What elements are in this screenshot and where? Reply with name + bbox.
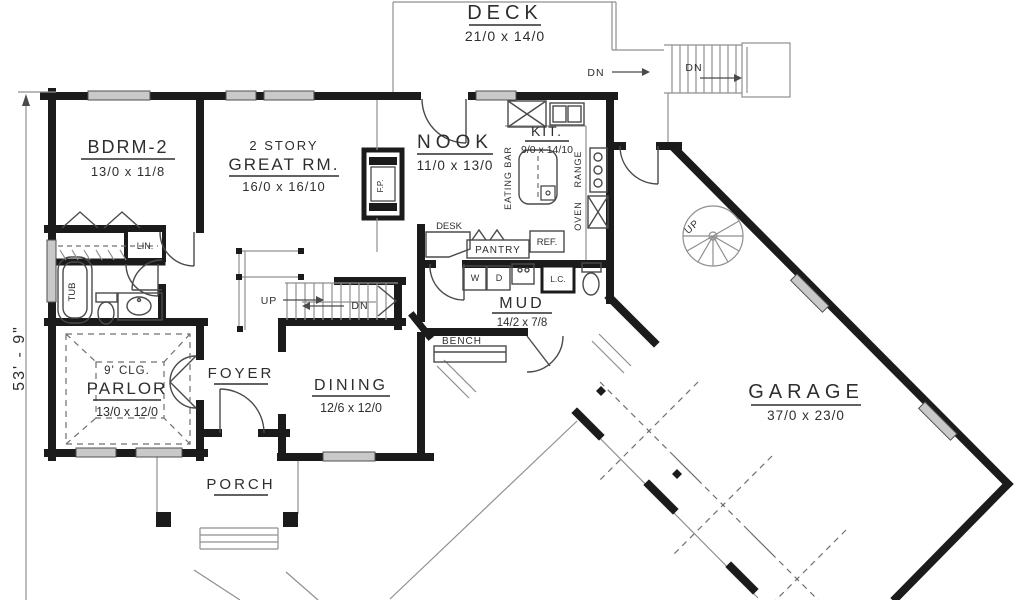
nook-name: NOOK [417, 132, 493, 153]
ref-label: REF. [537, 237, 558, 248]
room-label-dining: DINING 12/6 x 12/0 [312, 377, 390, 415]
floor-plan-drawing: DECK 21/0 x 14/0 BDRM-2 13/0 x 11/8 2 ST… [0, 0, 1024, 600]
garage-walls [577, 150, 1008, 598]
room-label-deck: DECK 21/0 x 14/0 [465, 2, 545, 44]
garage-post-marker [672, 469, 682, 479]
foyer-name: FOYER [208, 365, 275, 382]
driveway-walk-lines [194, 334, 758, 600]
great-rm-prefix: 2 STORY [249, 138, 318, 153]
oven-label: OVEN [573, 201, 583, 231]
room-label-kitchen: KIT. 9/0 x 14/10 [521, 123, 573, 156]
deck-name: DECK [467, 2, 543, 24]
mud-dim: 14/2 x 7/8 [497, 317, 548, 329]
parlor-dim: 13/0 x 12/0 [96, 405, 158, 419]
desk-label: DESK [436, 221, 463, 232]
parlor-name: PARLOR [87, 379, 168, 398]
oven-cabinet [588, 196, 608, 228]
garage-post-marker [596, 386, 606, 396]
room-label-porch: PORCH [206, 476, 275, 495]
linen-door-arc [126, 264, 158, 296]
stairs-dn-label: DN [351, 300, 368, 312]
spiral-up-label: UP [683, 218, 702, 237]
tub-label: TUB [67, 283, 78, 302]
room-label-mud: MUD 14/2 x 7/8 [492, 295, 552, 329]
porch-name: PORCH [206, 476, 275, 493]
kitchen-island [519, 150, 557, 204]
mud-name: MUD [499, 295, 544, 312]
garage-dim: 37/0 x 23/0 [767, 408, 845, 423]
stairs-up-label: UP [261, 295, 278, 307]
nook-dim: 11/0 x 13/0 [417, 158, 494, 173]
kitchen-dim: 9/0 x 14/10 [521, 144, 573, 156]
great-rm-dim: 16/0 x 16/10 [242, 179, 326, 194]
side-dimension-label: 53' - 9" [11, 325, 28, 391]
parlor-double-door-arcs [170, 356, 196, 408]
porch-column [156, 512, 171, 527]
washer-label: W [471, 273, 480, 283]
dining-name: DINING [314, 377, 388, 394]
room-label-great-rm: 2 STORY GREAT RM. 16/0 x 16/10 [229, 138, 340, 194]
pantry-label: PANTRY [475, 245, 521, 256]
deck-walkway [612, 45, 742, 144]
desk-counter [426, 232, 470, 257]
room-label-foyer: FOYER [208, 365, 275, 384]
deck-dn-label: DN [587, 67, 604, 79]
range-burners [590, 148, 607, 192]
dining-dim: 12/6 x 12/0 [320, 401, 382, 415]
deck-dim: 21/0 x 14/0 [465, 28, 545, 44]
bdrm2-dim: 13/0 x 11/8 [91, 164, 165, 179]
breezeway-door-arc [620, 146, 658, 184]
fp-label: F.P. [376, 180, 385, 193]
lc-label: L.C. [550, 274, 566, 284]
bench-label: BENCH [442, 336, 482, 347]
room-label-garage: GARAGE 37/0 x 23/0 [748, 381, 864, 423]
mud-court-door-arc [527, 336, 563, 372]
bdrm2-name: BDRM-2 [87, 137, 168, 157]
range-label: RANGE [573, 150, 583, 187]
great-rm-name: GREAT RM. [229, 155, 340, 174]
floor-plan: DECK 21/0 x 14/0 BDRM-2 13/0 x 11/8 2 ST… [0, 0, 1024, 600]
room-label-bdrm2: BDRM-2 13/0 x 11/8 [81, 137, 175, 179]
front-door-arc [220, 389, 264, 433]
room-label-nook: NOOK 11/0 x 13/0 [417, 132, 494, 173]
mud-door-arc [430, 264, 464, 300]
deck-door-opening [421, 89, 468, 102]
parlor-ceiling: 9' CLG. [104, 365, 150, 377]
stair-break-chevron [378, 286, 396, 316]
garage-name: GARAGE [748, 381, 864, 403]
bench-seat [434, 346, 506, 362]
porch-column [283, 512, 298, 527]
lin-label: LIN. [137, 241, 154, 251]
double-sink [550, 103, 584, 125]
room-label-parlor: 9' CLG. PARLOR 13/0 x 12/0 [87, 365, 168, 419]
deck-stair-dn-label: DN [685, 62, 702, 74]
kitchen-name: KIT. [531, 123, 563, 139]
eating-bar-label: EATING BAR [503, 146, 513, 210]
dryer-label: D [496, 273, 503, 283]
bath-vanity [118, 293, 162, 320]
spiral-stair [683, 206, 743, 266]
porch-outline [157, 457, 298, 549]
